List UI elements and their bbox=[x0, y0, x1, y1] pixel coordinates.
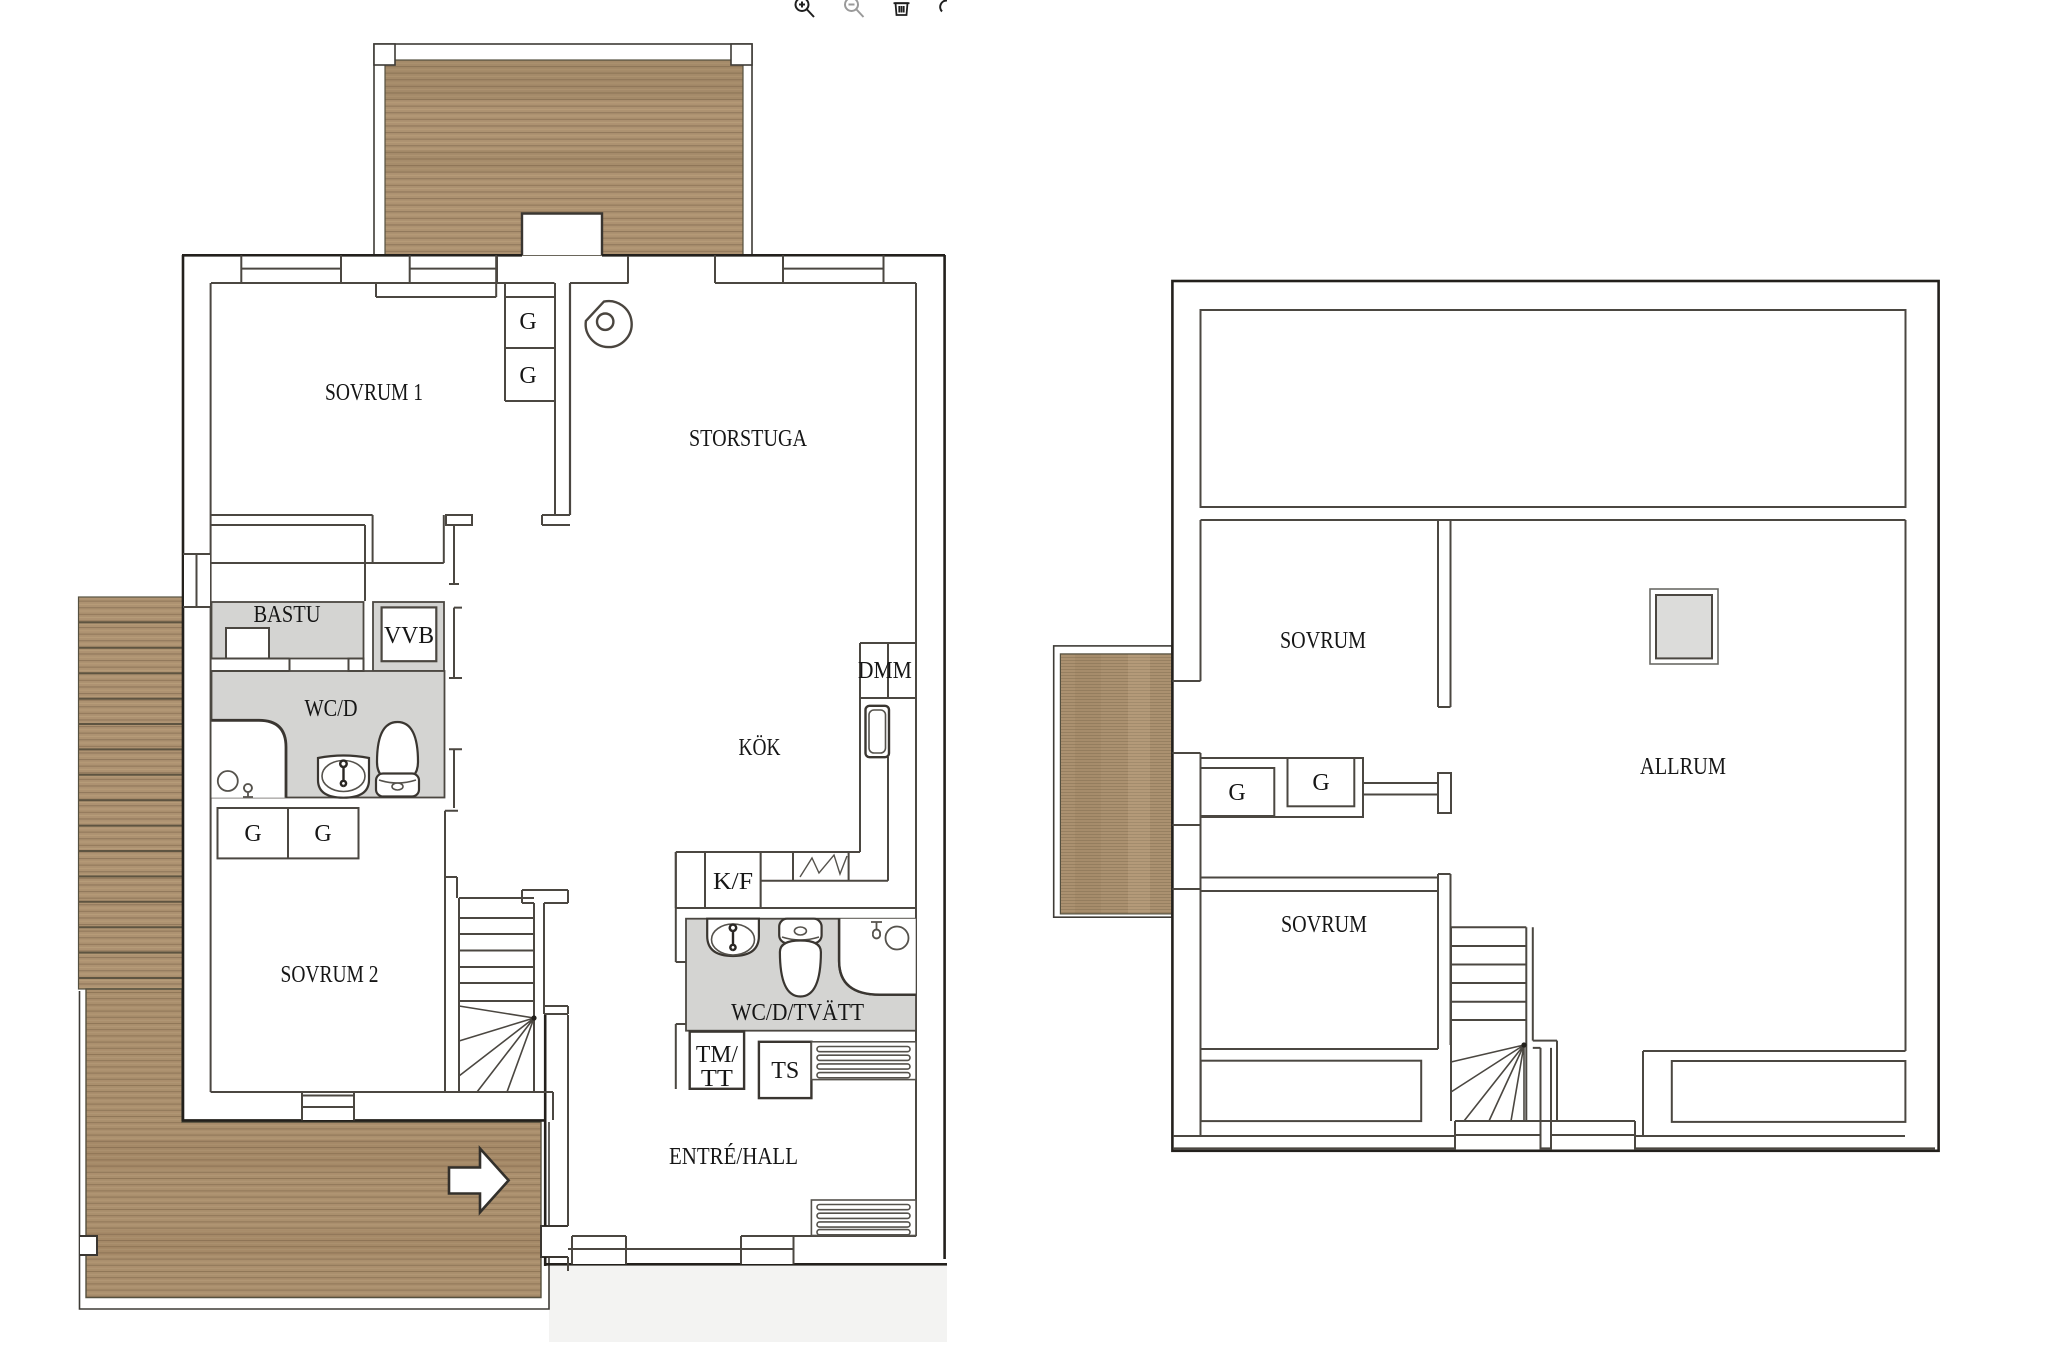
svg-text:WC/D: WC/D bbox=[305, 696, 358, 722]
svg-text:SOVRUM: SOVRUM bbox=[1280, 628, 1366, 654]
svg-text:K/F: K/F bbox=[713, 869, 753, 895]
svg-text:ALLRUM: ALLRUM bbox=[1640, 754, 1726, 780]
svg-text:ENTRÉ/HALL: ENTRÉ/HALL bbox=[669, 1144, 798, 1170]
svg-text:G: G bbox=[519, 363, 536, 389]
svg-text:G: G bbox=[314, 821, 331, 847]
svg-text:BASTU: BASTU bbox=[254, 602, 321, 628]
svg-text:TM/: TM/ bbox=[696, 1042, 738, 1068]
svg-text:G: G bbox=[519, 309, 536, 335]
svg-text:G: G bbox=[1312, 770, 1329, 796]
svg-text:SOVRUM 2: SOVRUM 2 bbox=[281, 962, 379, 988]
svg-text:VVB: VVB bbox=[384, 623, 434, 649]
svg-text:DMM: DMM bbox=[858, 658, 912, 684]
svg-text:KÖK: KÖK bbox=[739, 735, 782, 761]
svg-text:G: G bbox=[244, 821, 261, 847]
svg-text:STORSTUGA: STORSTUGA bbox=[689, 426, 808, 452]
svg-text:TT: TT bbox=[701, 1066, 733, 1092]
svg-text:SOVRUM 1: SOVRUM 1 bbox=[325, 380, 423, 406]
svg-text:TS: TS bbox=[771, 1058, 799, 1084]
svg-text:WC/D/TVÄTT: WC/D/TVÄTT bbox=[731, 1000, 864, 1026]
svg-text:G: G bbox=[1228, 780, 1245, 806]
svg-text:SOVRUM: SOVRUM bbox=[1281, 912, 1367, 938]
